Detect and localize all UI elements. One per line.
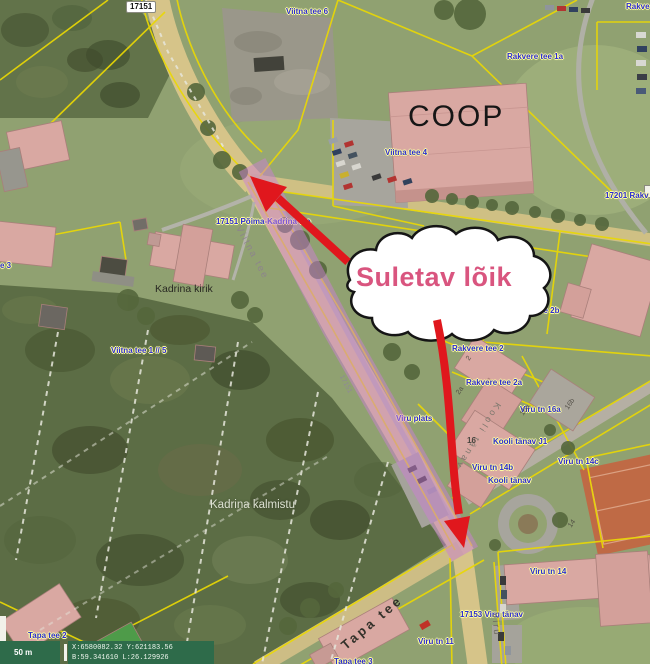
annotation-layer: [0, 0, 650, 664]
closed-section-label: Suletav lõik: [356, 262, 512, 293]
legend-tab: [0, 616, 6, 644]
map-canvas[interactable]: 17151 Viitna tee 6 Rakve Rakvere tee 1a …: [0, 0, 650, 664]
coords-bl: B:59.341610 L:26.129926: [72, 653, 210, 663]
scale-tick: [64, 644, 67, 661]
coordinate-readout: X:6580082.32 Y:621183.56 B:59.341610 L:2…: [68, 641, 214, 664]
coords-xy: X:6580082.32 Y:621183.56: [72, 643, 210, 653]
scale-bar: 50 m: [0, 641, 60, 664]
closure-highlight-overlay: [252, 165, 465, 554]
